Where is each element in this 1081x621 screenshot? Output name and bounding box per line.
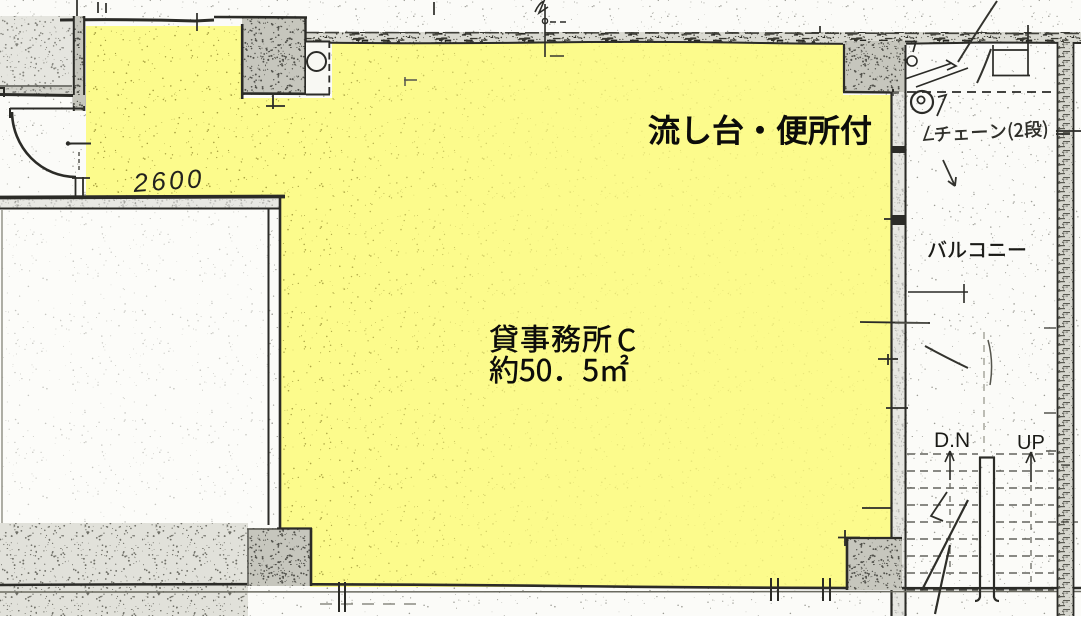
svg-text:D.N: D.N [934, 429, 970, 452]
svg-text:UP: UP [1017, 432, 1045, 454]
svg-text:2600: 2600 [131, 163, 205, 198]
